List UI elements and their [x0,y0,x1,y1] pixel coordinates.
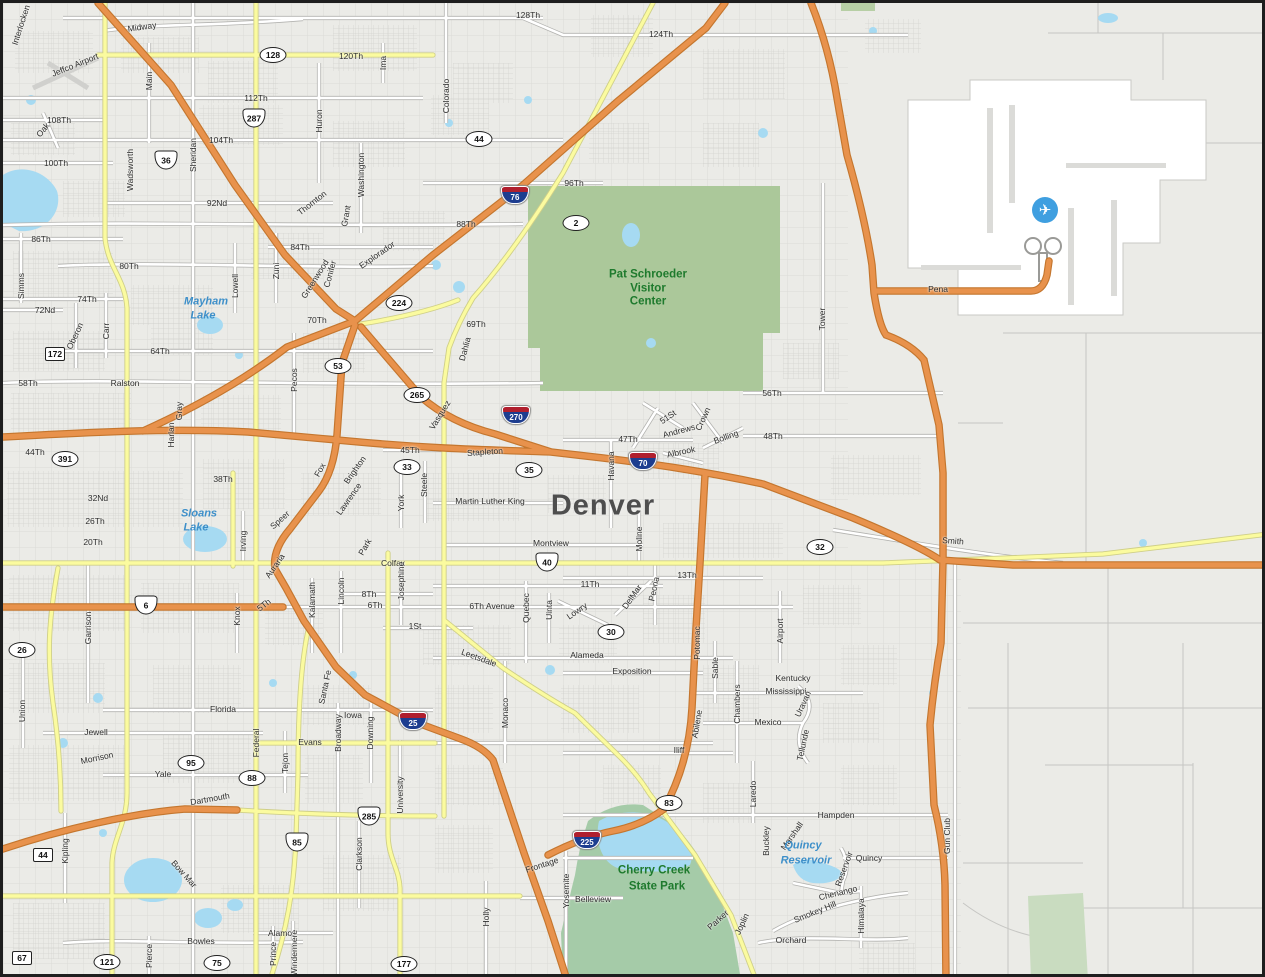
rocky-mountain-arsenal-park [528,186,780,391]
open-space-patch [1028,893,1088,977]
park-strip [841,3,875,11]
road-network [3,3,1265,977]
map-canvas[interactable]: InterlockenMidwayJeffco Airport128Th124T… [0,0,1265,977]
airplane-icon: ✈ [1032,197,1058,223]
airplane-glyph: ✈ [1039,201,1052,219]
